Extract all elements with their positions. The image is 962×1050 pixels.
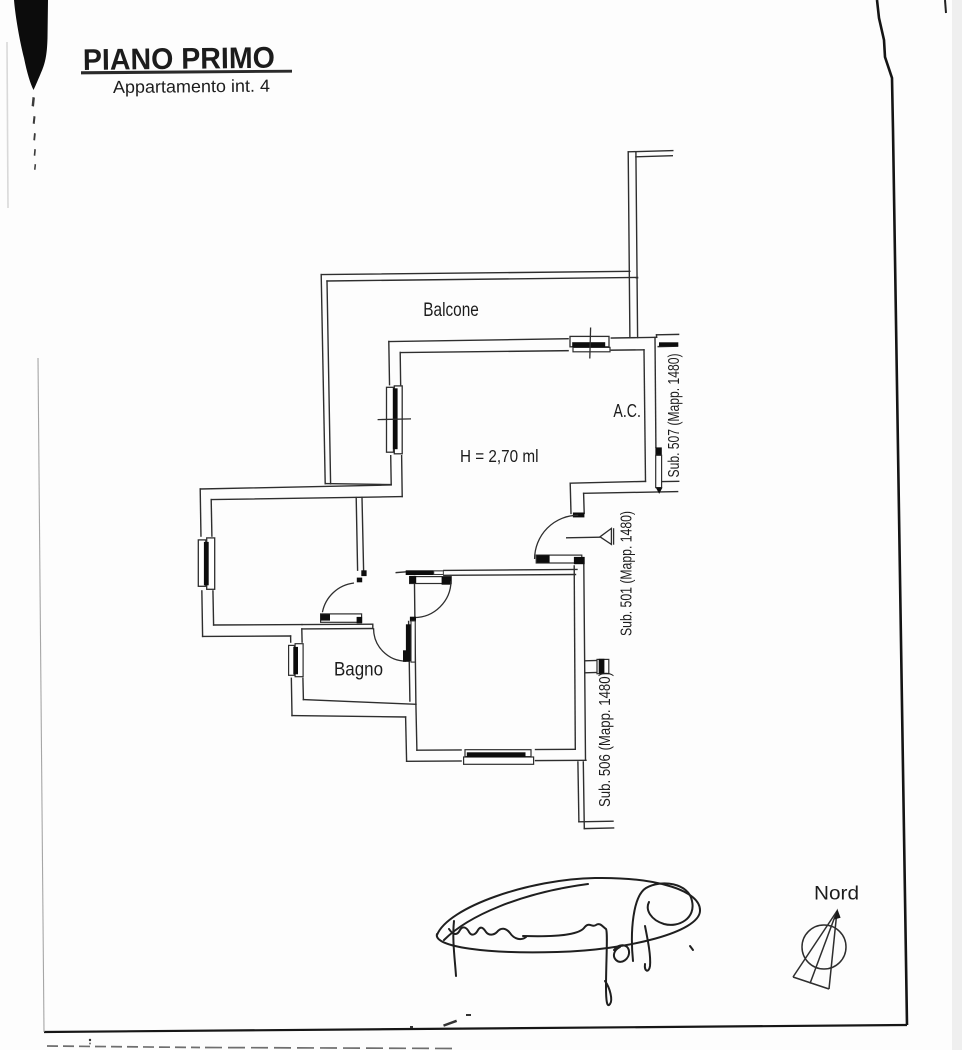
svg-text:Sub. 501 (Mapp. 1480): Sub. 501 (Mapp. 1480) (619, 511, 636, 636)
svg-text:Appartamento int. 4: Appartamento int. 4 (113, 76, 270, 97)
svg-text:A.C.: A.C. (613, 400, 641, 421)
svg-text:Sub. 507 (Mapp. 1480): Sub. 507 (Mapp. 1480) (666, 354, 683, 478)
svg-text:Bagno: Bagno (334, 659, 383, 681)
svg-text:Balcone: Balcone (423, 299, 479, 321)
svg-text:Nord: Nord (814, 883, 859, 905)
svg-text:Sub. 506 (Mapp. 1480): Sub. 506 (Mapp. 1480) (597, 672, 614, 807)
svg-text:H = 2,70 ml: H = 2,70 ml (460, 446, 539, 466)
